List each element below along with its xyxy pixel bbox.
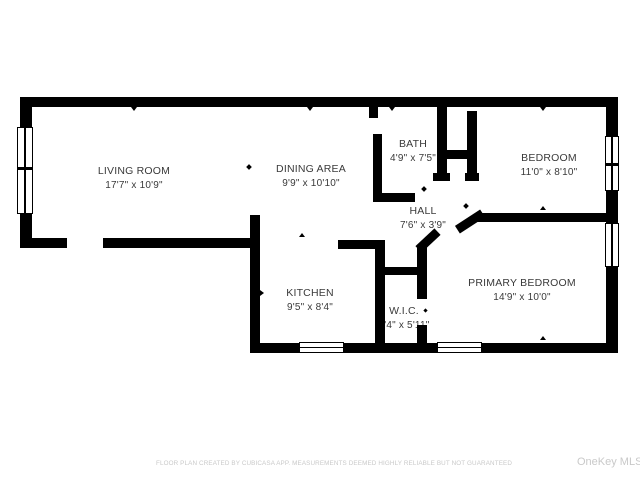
dimension-marker: [540, 206, 546, 210]
room-name: KITCHEN: [286, 287, 334, 301]
room-dimensions: 9'9" x 10'10": [276, 177, 346, 190]
wall-wic-right-upper: [417, 246, 427, 299]
wall-livingroom-bottom-right: [103, 238, 260, 248]
wall-bath-right-foot: [433, 173, 450, 181]
room-label-bedroom: BEDROOM 11'0" x 8'10": [521, 152, 578, 179]
door-swing-marker: [463, 203, 469, 209]
wall-closet-shelf: [441, 150, 472, 159]
wall-bath-bottom: [373, 193, 415, 202]
wall-kitchen-left: [250, 215, 260, 347]
window-primary-right: [605, 223, 619, 267]
room-label-hall: HALL 7'6" x 3'9": [400, 205, 446, 232]
wall-wic-top: [375, 267, 423, 275]
room-label-bath: BATH 4'9" x 7'5": [390, 138, 436, 165]
dimension-marker: [307, 107, 313, 111]
window-mullion: [605, 163, 619, 166]
room-label-primary-bedroom: PRIMARY BEDROOM 14'9" x 10'0": [468, 277, 576, 304]
room-label-living-room: LIVING ROOM 17'7" x 10'9": [98, 165, 170, 192]
window-living-left: [17, 127, 33, 214]
dimension-marker: [260, 290, 264, 296]
mls-watermark: OneKey MLS: [577, 456, 640, 468]
floor-plan-canvas: LIVING ROOM 17'7" x 10'9" DINING AREA 9'…: [0, 0, 640, 480]
room-dimensions: 14'9" x 10'0": [468, 291, 576, 304]
room-dimensions: 11'0" x 8'10": [521, 166, 578, 179]
disclaimer-text: FLOOR PLAN CREATED BY CUBICASA APP. MEAS…: [156, 460, 512, 467]
room-name: LIVING ROOM: [98, 165, 170, 179]
wall-top: [20, 97, 618, 107]
room-name: W.I.C.: [379, 305, 430, 319]
window-mullion: [17, 167, 33, 170]
dimension-marker: [540, 107, 546, 111]
screenshot-root: { "colors": { "wall": "#000000", "backgr…: [0, 0, 640, 480]
wall-bath-left: [373, 134, 382, 202]
room-label-dining-area: DINING AREA 9'9" x 10'10": [276, 163, 346, 190]
window-primary-bottom: [437, 342, 482, 353]
dimension-marker: [540, 336, 546, 340]
dimension-marker: [389, 107, 395, 111]
room-dimensions: 17'7" x 10'9": [98, 179, 170, 192]
wall-wic-right-lower: [417, 325, 427, 345]
window-kitchen-bottom: [299, 342, 344, 353]
door-swing-marker: [421, 186, 427, 192]
wall-bath-right: [437, 97, 447, 179]
wall-bath-left-stub: [369, 97, 378, 118]
room-label-kitchen: KITCHEN 9'5" x 8'4": [286, 287, 334, 314]
room-dimensions: 7'6" x 3'9": [400, 219, 446, 232]
wall-wic-left: [375, 240, 385, 345]
room-name: DINING AREA: [276, 163, 346, 177]
room-name: BEDROOM: [521, 152, 578, 166]
room-dimensions: 4'9" x 7'5": [390, 152, 436, 165]
room-dimensions: 9'5" x 8'4": [286, 301, 334, 314]
room-name: PRIMARY BEDROOM: [468, 277, 576, 291]
wall-bedroom-divider: [476, 213, 618, 222]
window-bedroom-right: [605, 136, 619, 191]
wall-closet-right-foot: [465, 173, 479, 181]
room-name: BATH: [390, 138, 436, 152]
room-name: HALL: [400, 205, 446, 219]
door-swing-marker: [246, 164, 252, 170]
dimension-marker: [131, 107, 137, 111]
wall-closet-right: [467, 111, 477, 175]
dimension-marker: [299, 233, 305, 237]
wall-livingroom-bottom-left: [20, 238, 67, 248]
